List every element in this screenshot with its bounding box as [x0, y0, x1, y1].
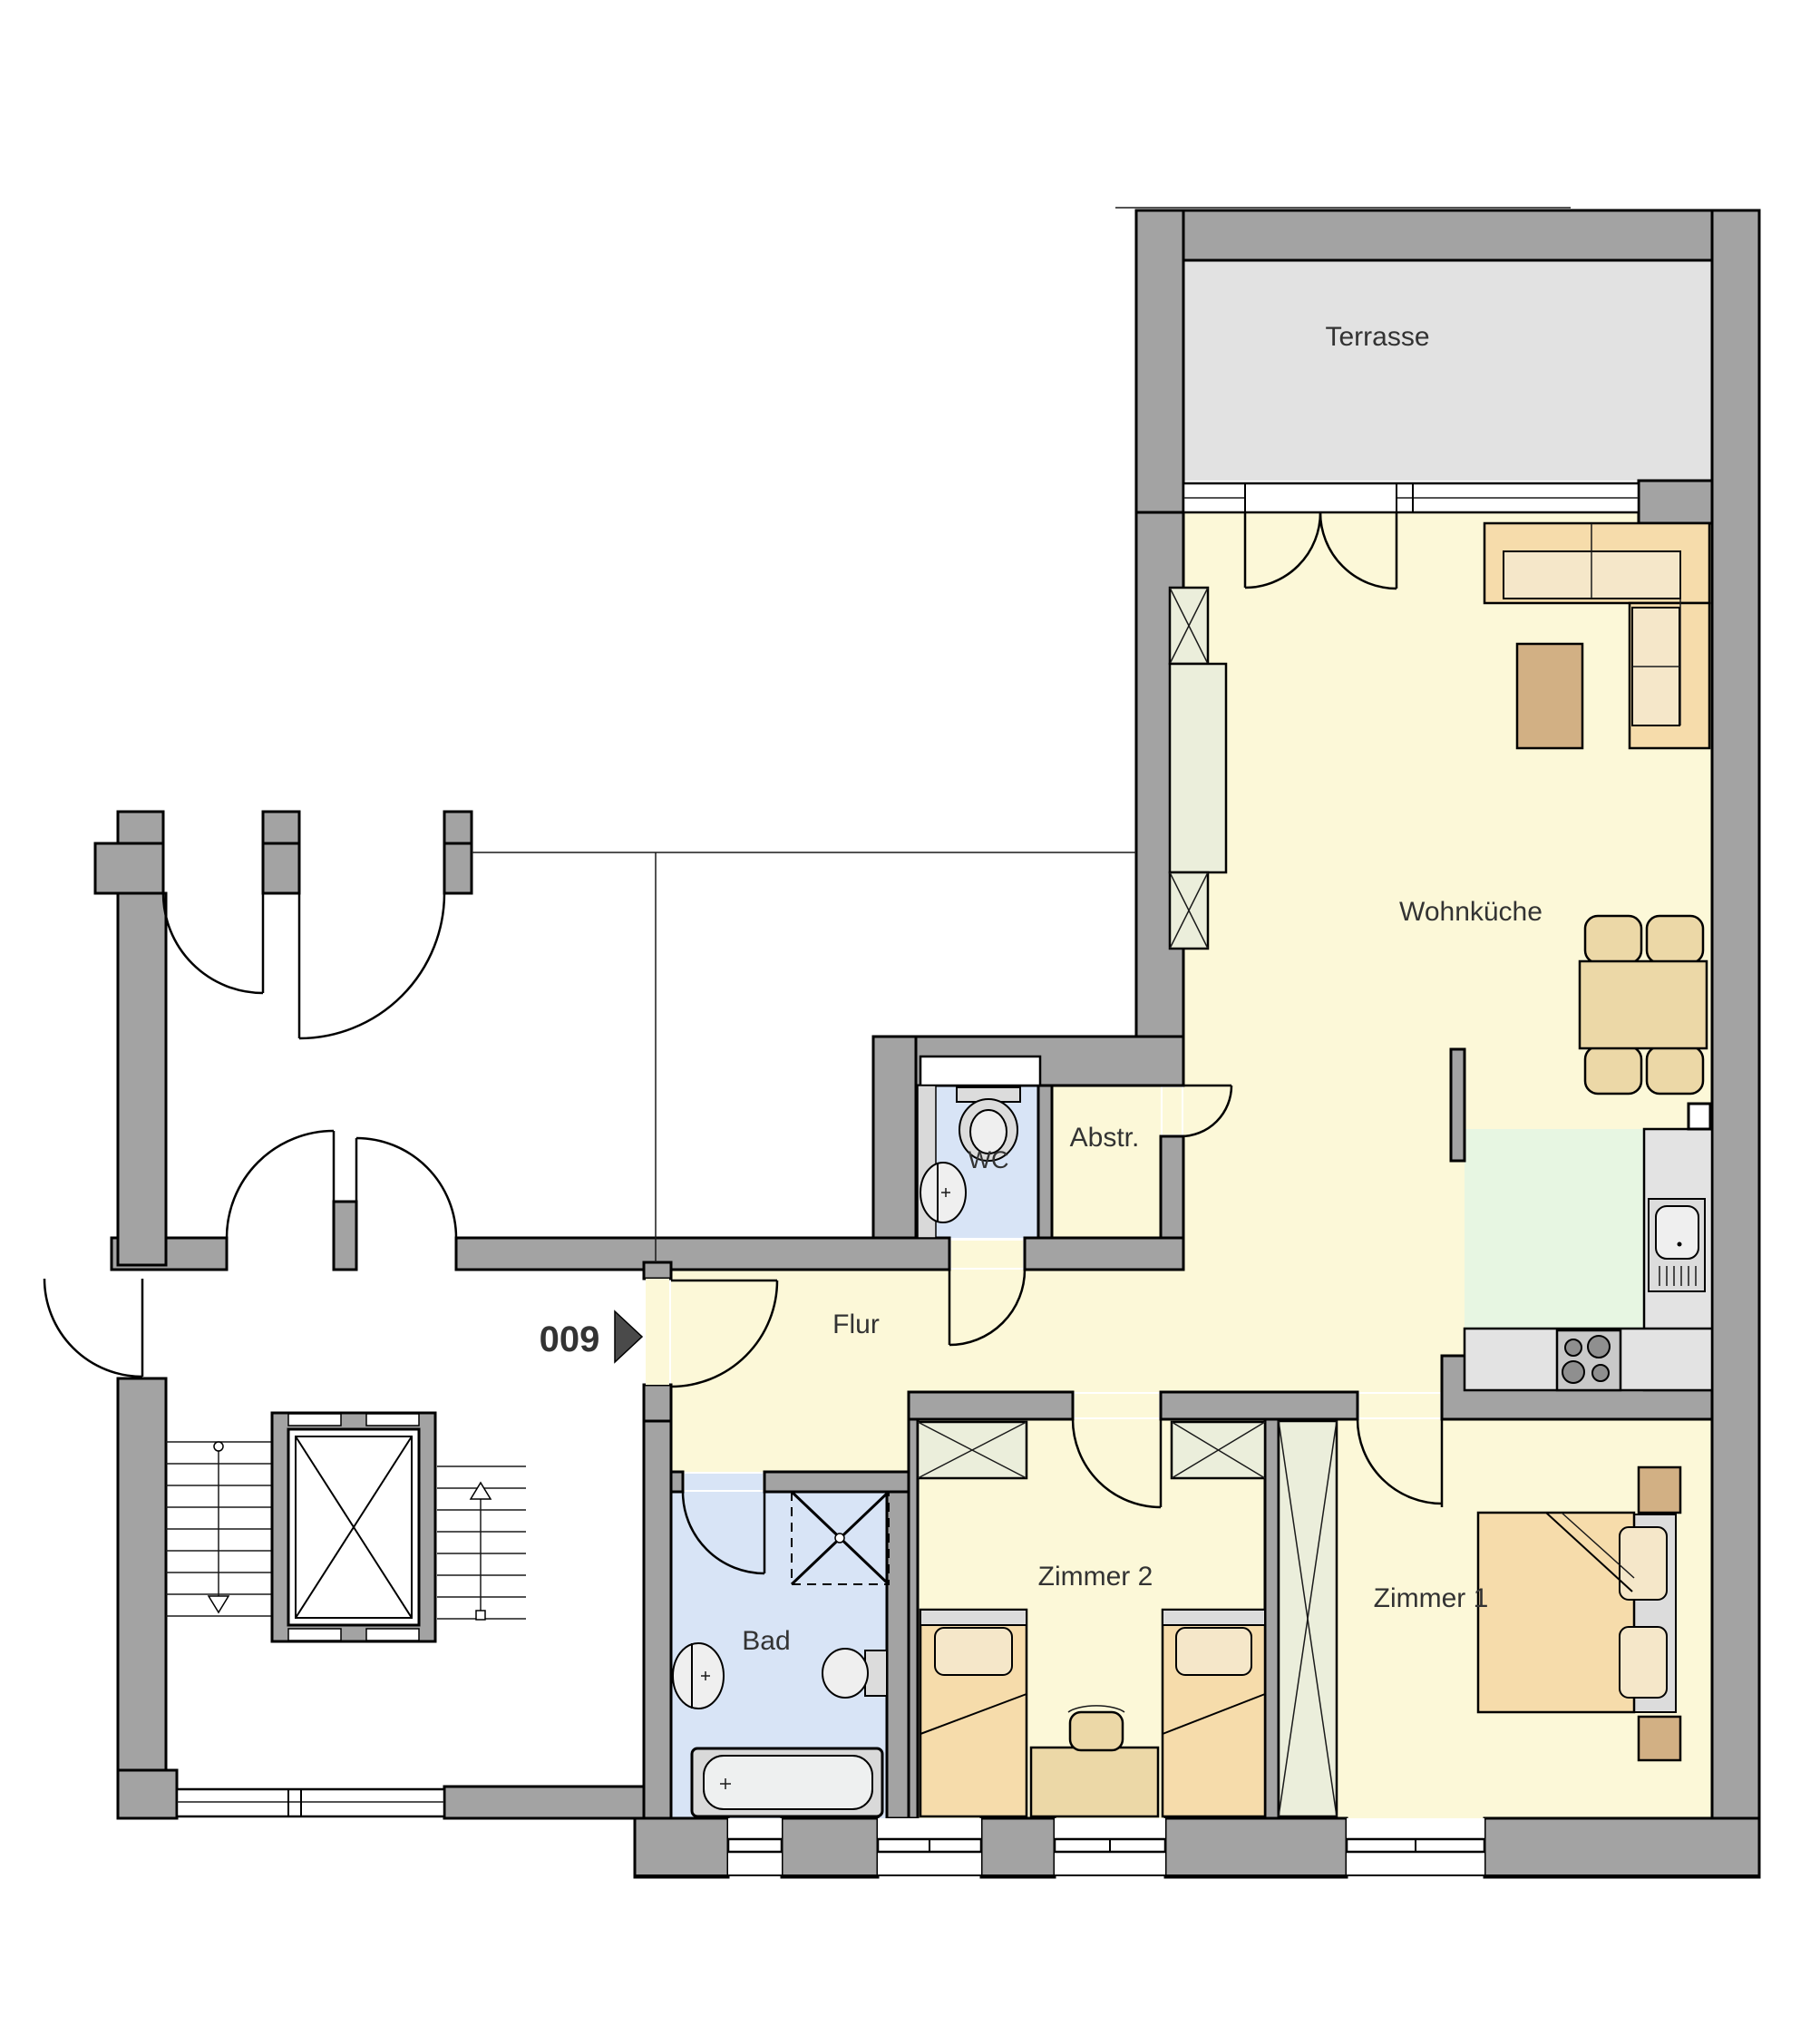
wall-vestibule-top-a [95, 843, 163, 893]
unit-number: 009 [540, 1319, 600, 1359]
unit-arrow-icon [615, 1311, 642, 1362]
window-zimmer1 [1347, 1818, 1484, 1875]
pillow [1620, 1627, 1667, 1698]
wall-zimmer2-right [1265, 1419, 1279, 1818]
wall-pilaster-c [444, 812, 472, 843]
wall-bottom-b [782, 1818, 878, 1877]
wall-stairwell-corner [118, 1770, 177, 1818]
nightstand-bottom [1639, 1717, 1680, 1760]
room-label-bad: Bad [742, 1626, 790, 1656]
threshold-wc [951, 1241, 1023, 1268]
window-zimmer2-west [878, 1818, 981, 1875]
room-label-zimmer1: Zimmer 1 [1374, 1583, 1489, 1613]
wall-left-upper [118, 893, 166, 1265]
wall-pilaster-b [263, 812, 299, 843]
wall-vestibule-top-b [263, 843, 299, 893]
wall-zimmer2-top-b [1161, 1392, 1358, 1419]
cabinet-tall [1170, 664, 1226, 872]
wohnkueche-floor-south [1183, 1356, 1448, 1392]
wall-entry-b [644, 1385, 671, 1421]
stairs-up-arrow [471, 1483, 491, 1499]
wall-abstr-right [1161, 1136, 1183, 1238]
flur-floor-south [671, 1392, 909, 1472]
pillow [1620, 1527, 1667, 1600]
window-stairwell [177, 1789, 444, 1816]
desk [1031, 1748, 1158, 1816]
room-label-abstellraum: Abstr. [1070, 1123, 1140, 1153]
dining-table [1580, 961, 1707, 1048]
wardrobe-left [918, 1422, 1027, 1478]
room-label-wc: WC [968, 1146, 1009, 1173]
wall-bottom-d [1165, 1818, 1347, 1877]
chair [1585, 1047, 1641, 1094]
building-entrance-doors [163, 893, 444, 1038]
wall-terrace-left [1136, 210, 1183, 512]
wall-kitchen-stub [1451, 1049, 1465, 1161]
wardrobe-tall [1279, 1421, 1337, 1816]
window-zimmer2-south [1055, 1818, 1165, 1875]
wardrobe-right [1172, 1422, 1265, 1478]
wall-left-lower [118, 1378, 166, 1770]
floor-plan-drawing: Terrasse Wohnküche Abstr. WC Flur Bad Zi… [0, 0, 1820, 2035]
room-label-flur: Flur [832, 1310, 880, 1339]
boiler-box [1689, 1104, 1710, 1129]
kitchen-sink [1649, 1199, 1705, 1291]
double-bed [1478, 1513, 1676, 1712]
threshold-zimmer2 [1075, 1394, 1159, 1417]
threshold-bad [685, 1474, 763, 1490]
wall-bad-top-b [764, 1472, 909, 1492]
wall-vestibule-top-c [444, 843, 472, 893]
terrace-floor [1183, 260, 1712, 481]
shower-head-icon [835, 1534, 844, 1543]
stairwell [166, 1413, 526, 1641]
wc-basin [920, 1163, 966, 1222]
stairs-left-flight [166, 1442, 272, 1616]
wall-flur-top-b [1025, 1238, 1183, 1270]
room-label-terrasse: Terrasse [1325, 322, 1429, 352]
wall-bad-right [887, 1492, 909, 1818]
bad-basin [673, 1643, 724, 1709]
wall-entry-a [644, 1262, 671, 1279]
floor-plan-page: Terrasse Wohnküche Abstr. WC Flur Bad Zi… [0, 0, 1820, 2035]
wall-terrace-top [1136, 210, 1759, 260]
desk-chair [1068, 1706, 1124, 1750]
wall-bottom-c [981, 1818, 1055, 1877]
wc-window [920, 1056, 1040, 1086]
bad-toilet [822, 1649, 887, 1698]
wall-bottom-e [1484, 1818, 1759, 1877]
threshold-abstr [1163, 1087, 1182, 1134]
wall-bottom-a [635, 1818, 728, 1877]
flur-floor [671, 1270, 1183, 1392]
stairs-down-arrow [209, 1596, 229, 1612]
wall-pilaster-a [118, 812, 163, 843]
chair [1647, 1047, 1703, 1094]
elevator [272, 1413, 435, 1641]
wall-vestibule-post [334, 1202, 356, 1270]
threshold-entry [646, 1279, 669, 1385]
wall-flur-top [456, 1238, 949, 1270]
bathtub [692, 1748, 882, 1816]
abstellraum-floor [1052, 1086, 1161, 1238]
nightstand-top [1639, 1467, 1680, 1513]
coffee-table [1517, 644, 1582, 748]
wall-stairwell-right [644, 1421, 671, 1818]
wall-terrace-corner [1639, 481, 1712, 523]
wall-wc-abstr-divider [1038, 1086, 1052, 1238]
wall-zimmer2-top-a [909, 1392, 1073, 1419]
room-label-wohnkueche: Wohnküche [1399, 897, 1543, 927]
threshold-zimmer1 [1359, 1394, 1440, 1417]
wall-wc-left [873, 1037, 916, 1267]
wall-right [1712, 210, 1759, 1877]
window-bad [728, 1818, 782, 1875]
wall-bad-top-a [671, 1472, 683, 1492]
kitchen-floor [1465, 1129, 1644, 1329]
stove [1557, 1330, 1620, 1390]
bed-right [1163, 1610, 1265, 1816]
chair [1585, 916, 1641, 963]
wall-stairwell-bottom [444, 1787, 644, 1818]
unit-marker: 009 [540, 1311, 642, 1362]
stairs-right-flight [437, 1466, 526, 1620]
side-exit-door [44, 1279, 142, 1377]
chair [1647, 916, 1703, 963]
room-label-zimmer2: Zimmer 2 [1038, 1562, 1153, 1592]
wall-zimmer2-left [909, 1419, 918, 1818]
bed-left [920, 1610, 1027, 1816]
